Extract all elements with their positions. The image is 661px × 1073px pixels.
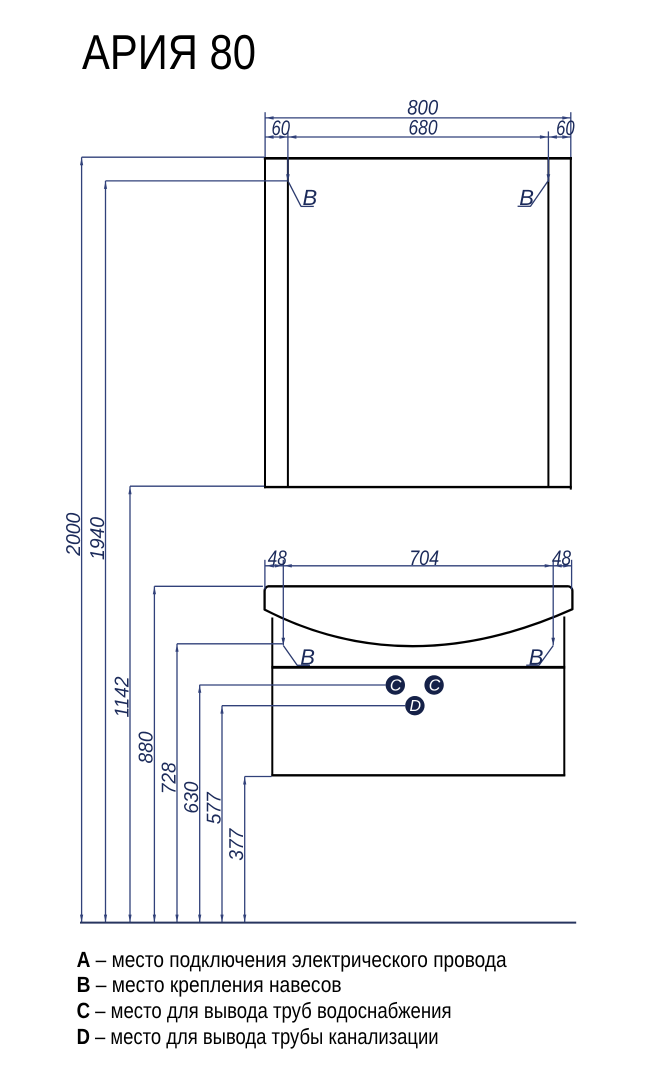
svg-text:577: 577 [203, 791, 225, 824]
svg-text:B: B [519, 185, 534, 210]
svg-text:B: B [300, 644, 315, 669]
svg-text:B: B [529, 644, 544, 669]
svg-text:D – место для вывода трубы кан: D – место для вывода трубы канализации [77, 1024, 439, 1049]
svg-text:680: 680 [409, 117, 438, 140]
svg-text:630: 630 [181, 782, 203, 814]
svg-text:C – место для вывода труб водо: C – место для вывода труб водоснабжения [77, 998, 452, 1023]
svg-text:АРИЯ 80: АРИЯ 80 [82, 26, 256, 80]
svg-text:A – место подключения электрич: A – место подключения электрического про… [77, 947, 508, 972]
svg-text:728: 728 [158, 762, 180, 794]
svg-text:D: D [410, 698, 422, 715]
svg-text:C: C [429, 677, 441, 694]
svg-text:48: 48 [268, 547, 287, 570]
svg-text:B: B [303, 185, 318, 210]
svg-text:880: 880 [136, 732, 158, 764]
svg-text:C: C [390, 677, 402, 694]
svg-text:2000: 2000 [63, 513, 85, 557]
svg-text:1142: 1142 [111, 677, 133, 718]
svg-text:48: 48 [552, 547, 571, 570]
svg-text:377: 377 [226, 828, 248, 861]
svg-text:1940: 1940 [87, 517, 109, 560]
svg-text:60: 60 [271, 117, 290, 140]
svg-text:704: 704 [409, 547, 439, 570]
svg-text:B – место крепления навесов: B – место крепления навесов [77, 972, 342, 997]
svg-text:60: 60 [556, 117, 575, 140]
